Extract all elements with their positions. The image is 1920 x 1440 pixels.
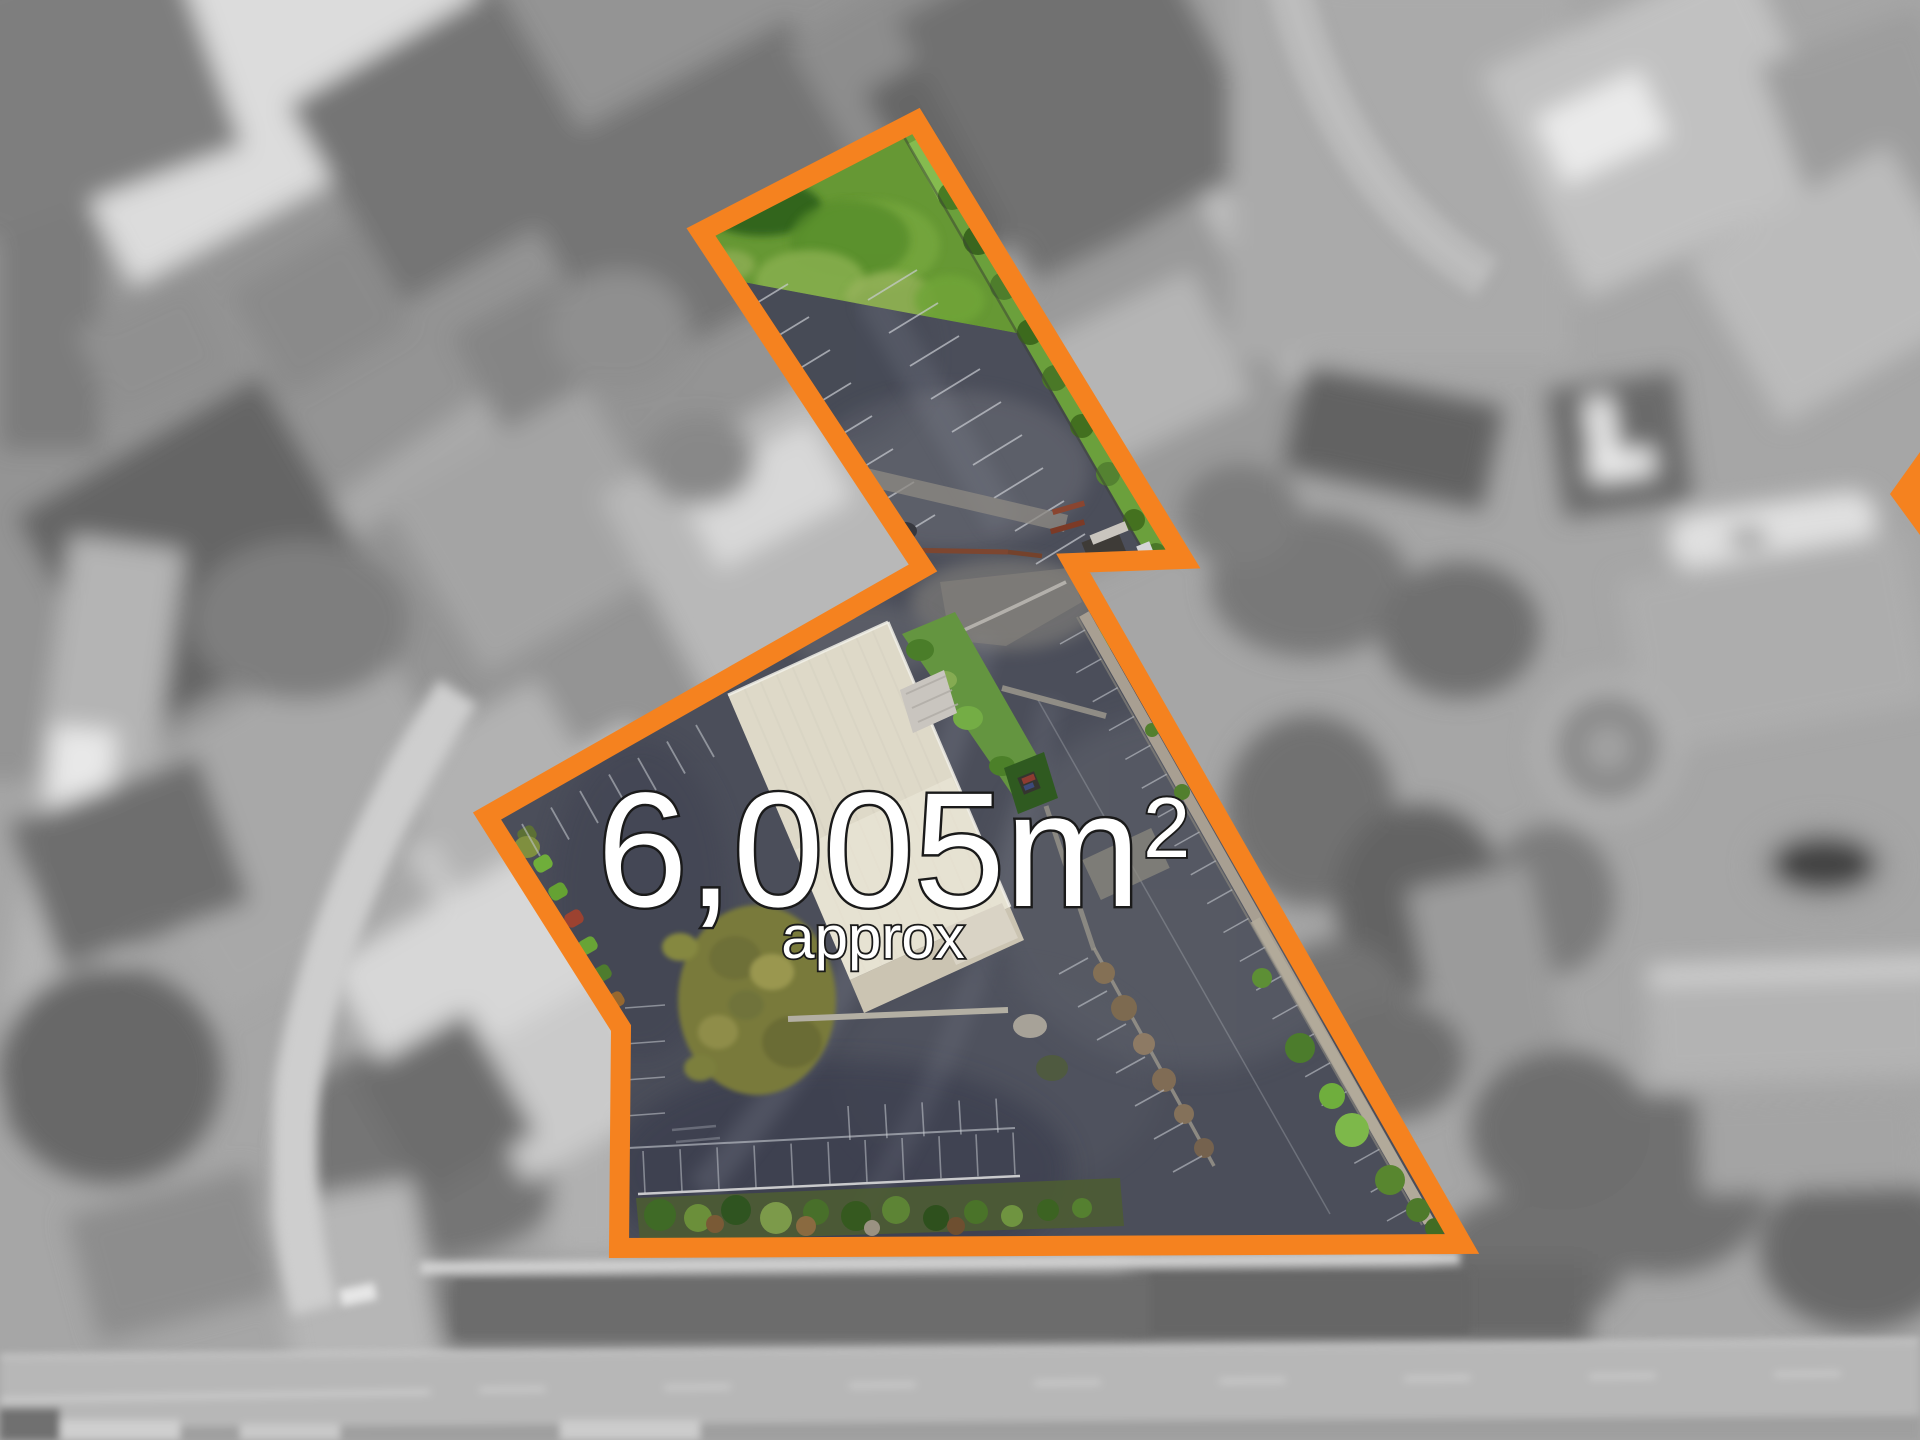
svg-text:approx: approx (781, 904, 964, 971)
svg-text:2: 2 (1143, 781, 1190, 876)
